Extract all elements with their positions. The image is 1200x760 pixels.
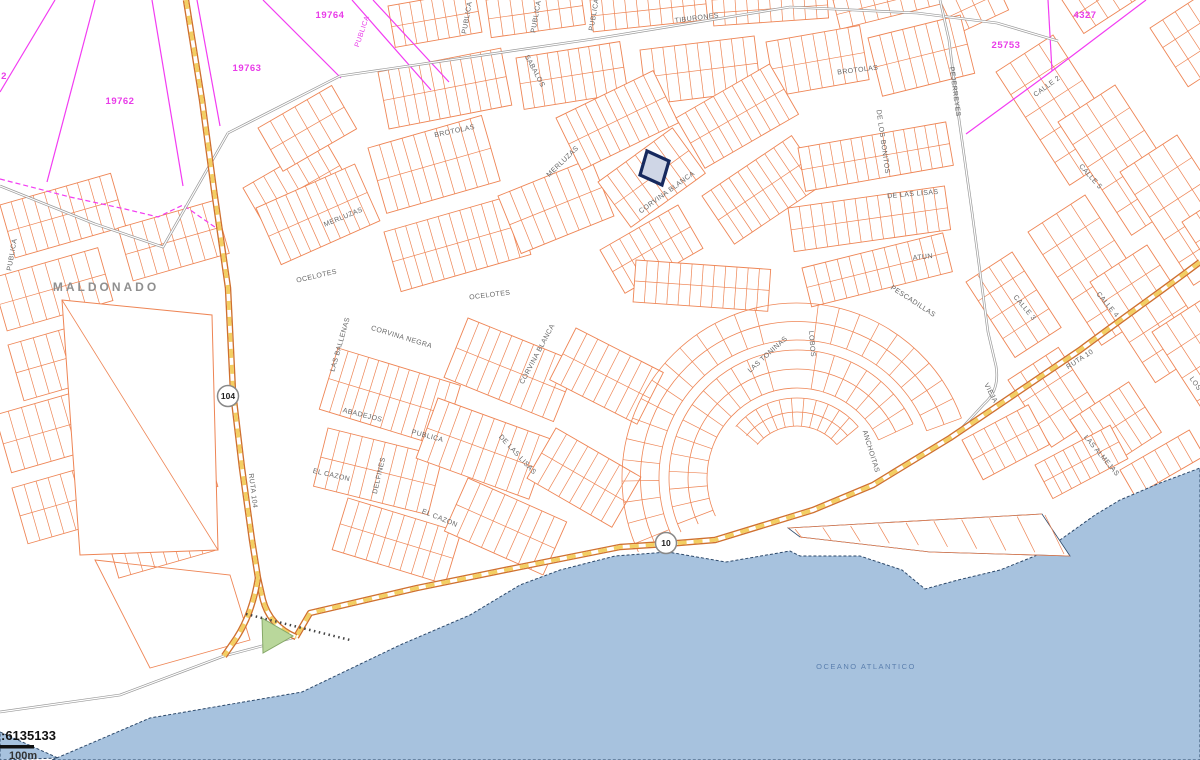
scale-bar-rect (0, 745, 34, 749)
ocean-label: OCEANO ATLANTICO (816, 662, 916, 671)
route-shield-number: 104 (221, 391, 235, 401)
parcel-number: 19763 (233, 63, 262, 74)
parcel-number: 19764 (316, 10, 345, 21)
parcel-number: 4327 (1073, 10, 1096, 21)
map-canvas[interactable]: MALDONADO OCEANO ATLANTICO TIBURONESBROT… (0, 0, 1200, 760)
route-shield-number: 10 (661, 538, 671, 548)
parcel-number: 2 (1, 71, 7, 82)
parcel-number: 19762 (106, 96, 135, 107)
scale-ratio-text: :6135133 (1, 728, 56, 743)
scale-bar-label: 100m (9, 750, 37, 760)
route-shield: 10 (656, 533, 677, 554)
map-viewport[interactable]: MALDONADO OCEANO ATLANTICO TIBURONESBROT… (0, 0, 1200, 760)
parcel-block (633, 260, 771, 311)
route-shield: 104 (218, 386, 239, 407)
parcel-number: 25753 (992, 40, 1021, 51)
city-label: MALDONADO (53, 280, 159, 294)
